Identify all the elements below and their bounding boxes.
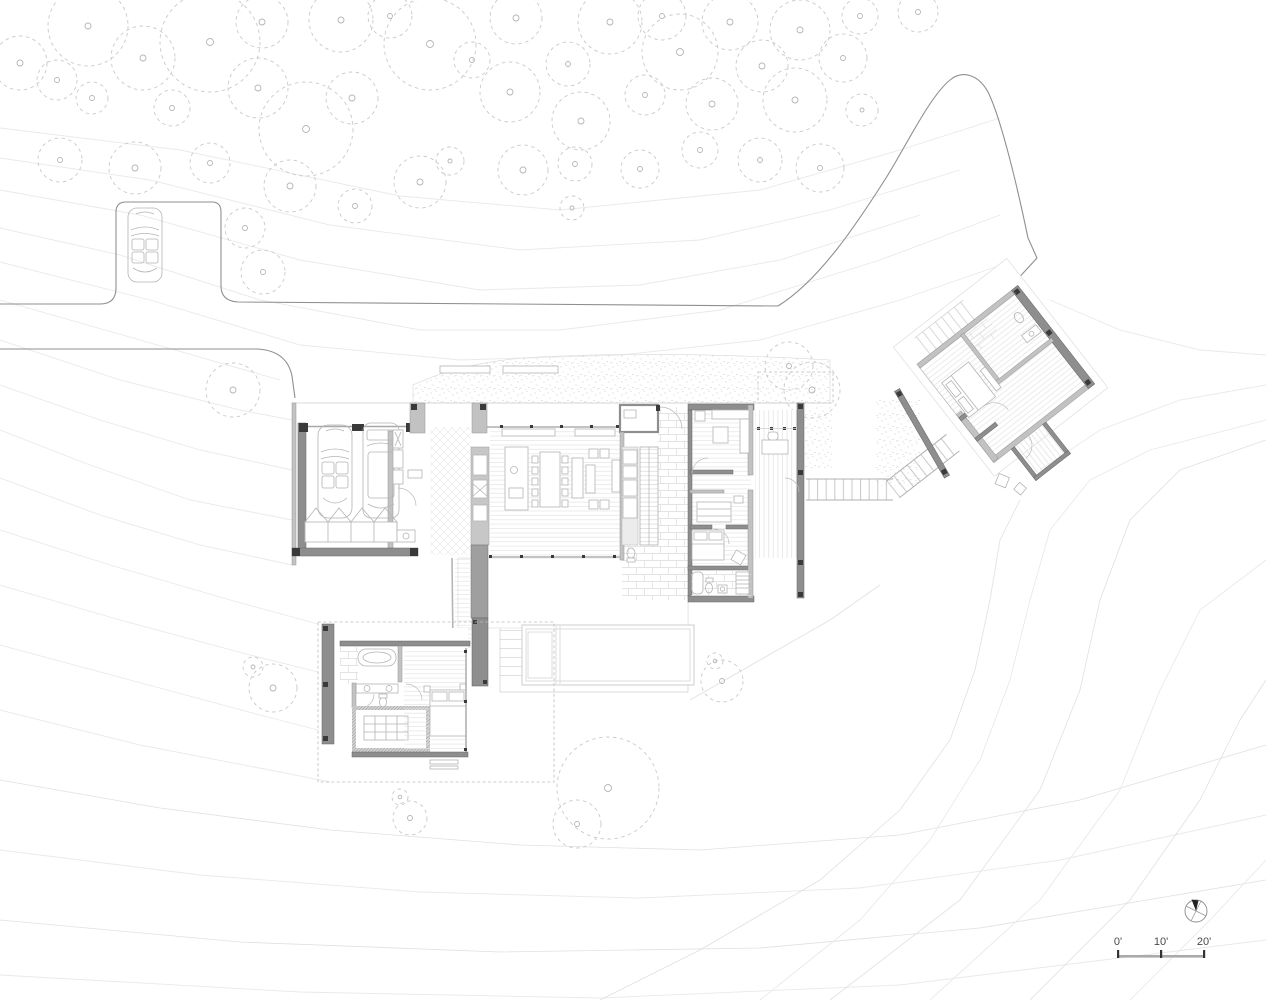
tree	[553, 800, 601, 848]
tree	[190, 143, 230, 183]
tree	[763, 68, 827, 132]
window-bench	[502, 429, 555, 436]
tree	[259, 82, 353, 176]
deck-step	[430, 760, 458, 764]
floor-plan-drawing: 0' 10' 20'	[0, 0, 1266, 1000]
site-plan-sheet: 0' 10' 20'	[0, 0, 1266, 1000]
gravel-patch-east	[802, 406, 832, 468]
planter-bench	[440, 366, 490, 373]
tree	[206, 363, 260, 417]
tree	[368, 0, 412, 38]
tree	[436, 147, 464, 175]
tree	[738, 138, 782, 182]
tree	[480, 62, 540, 122]
landscape-boulders	[995, 473, 1026, 495]
tree	[392, 789, 408, 805]
tree	[701, 660, 743, 702]
tree	[393, 801, 427, 835]
tree	[37, 60, 77, 100]
tree	[243, 657, 263, 677]
window-bench	[575, 429, 615, 436]
north-arrow-icon	[1185, 900, 1207, 923]
planter-bench	[503, 366, 558, 373]
pool-steps	[500, 628, 522, 684]
desk-chair	[768, 432, 778, 440]
tree	[38, 138, 82, 182]
tree	[338, 189, 372, 223]
tree	[249, 664, 297, 712]
master-tub	[358, 649, 396, 666]
tree	[558, 147, 592, 181]
tree	[111, 26, 175, 90]
car-convertible-driveway	[128, 208, 162, 282]
sink	[718, 585, 727, 593]
tree	[490, 0, 542, 44]
bench	[408, 470, 422, 478]
tree	[638, 0, 686, 40]
coffee-table	[586, 465, 595, 493]
vestibule	[620, 405, 658, 432]
tree	[686, 78, 738, 130]
tree	[228, 58, 288, 118]
tree	[309, 0, 373, 52]
tree	[225, 208, 265, 248]
tree	[546, 42, 590, 86]
scale-label-0: 0'	[1114, 936, 1122, 948]
pool	[522, 625, 694, 685]
tree	[898, 0, 938, 32]
tree	[770, 0, 830, 60]
scale-bar: 0' 10' 20'	[1114, 936, 1211, 958]
tree	[702, 0, 758, 50]
tree	[154, 90, 190, 126]
master-bedroom	[404, 648, 467, 752]
bathroom2	[691, 570, 751, 596]
entry-court-pavers	[430, 427, 470, 555]
tree	[454, 42, 490, 78]
tree	[0, 36, 47, 90]
tree	[264, 160, 316, 212]
tree	[384, 0, 476, 90]
tree	[241, 250, 285, 294]
tree	[642, 14, 718, 90]
scale-label-10: 10'	[1154, 936, 1168, 948]
tree	[160, 0, 260, 92]
tree	[682, 132, 718, 168]
tree	[819, 34, 867, 82]
hall-tile-floor	[658, 407, 691, 600]
tree	[48, 0, 128, 66]
gravel-strip	[413, 354, 830, 403]
tree	[76, 82, 108, 114]
tree	[557, 737, 659, 839]
kitchen-island	[505, 447, 528, 510]
driveway	[0, 75, 1037, 398]
tree	[621, 150, 659, 188]
linen-closet	[736, 572, 749, 594]
tree	[552, 92, 610, 150]
tree	[326, 72, 378, 124]
bathtub	[692, 572, 703, 594]
tree	[498, 145, 548, 195]
tree	[842, 0, 878, 34]
tree	[236, 0, 288, 48]
master-deck-wall	[472, 618, 488, 686]
stair-core	[620, 405, 658, 562]
tree	[109, 142, 161, 194]
tree	[625, 75, 665, 115]
tree	[578, 0, 642, 54]
tree	[846, 94, 878, 126]
tree	[736, 40, 788, 92]
scale-label-20: 20'	[1197, 936, 1211, 948]
tree	[394, 156, 446, 208]
